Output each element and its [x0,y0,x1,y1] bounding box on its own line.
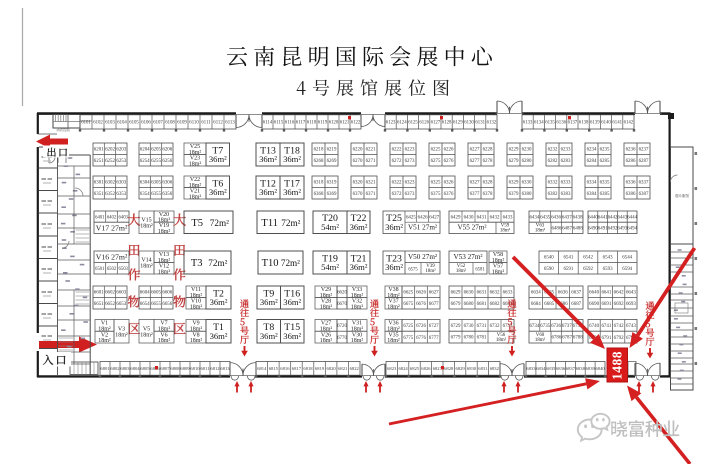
svg-text:V31: V31 [352,321,362,327]
svg-text:6322: 6322 [392,181,402,186]
svg-text:6111: 6111 [201,121,211,126]
svg-text:6354: 6354 [140,192,150,197]
svg-text:6121: 6121 [340,121,350,126]
svg-text:6270: 6270 [353,159,363,164]
svg-text:6652: 6652 [105,302,115,307]
svg-text:V6: V6 [160,332,167,338]
svg-text:6654: 6654 [140,302,150,307]
svg-text:6803: 6803 [120,366,130,371]
svg-text:36m²: 36m² [259,154,277,164]
svg-text:6814: 6814 [257,366,267,371]
svg-text:6840: 6840 [596,366,606,371]
svg-text:6805: 6805 [140,366,150,371]
svg-text:54m²: 54m² [321,262,339,272]
svg-text:6631: 6631 [477,291,487,296]
svg-text:6235: 6235 [600,148,610,153]
svg-text:6203: 6203 [116,148,126,153]
svg-text:18m²: 18m² [387,327,400,333]
svg-text:6809: 6809 [180,366,190,371]
svg-text:6838: 6838 [576,366,586,371]
svg-text:V53 27m²: V53 27m² [453,253,482,261]
svg-text:36m²: 36m² [260,331,278,341]
svg-text:V10: V10 [191,298,201,304]
svg-text:V39: V39 [426,264,435,269]
svg-text:6305: 6305 [151,181,161,186]
svg-text:6581: 6581 [475,267,485,272]
svg-text:6103: 6103 [105,121,115,126]
svg-text:6742: 6742 [614,324,624,329]
svg-text:6304: 6304 [140,181,150,186]
svg-text:6440: 6440 [588,215,598,220]
svg-text:6590: 6590 [544,267,554,272]
svg-text:6601: 6601 [94,291,104,296]
svg-text:6787: 6787 [562,336,572,341]
svg-text:6786: 6786 [551,336,561,341]
svg-text:6826: 6826 [421,366,431,371]
svg-text:6677: 6677 [429,302,439,307]
svg-text:6384: 6384 [587,192,597,197]
svg-text:6373: 6373 [405,192,415,197]
svg-text:6430: 6430 [464,215,474,220]
svg-text:6137: 6137 [568,121,578,126]
svg-text:6434: 6434 [529,215,539,220]
svg-text:6355: 6355 [151,192,161,197]
svg-text:6834: 6834 [536,366,546,371]
svg-text:6233: 6233 [561,148,571,153]
svg-text:6387: 6387 [639,192,649,197]
svg-text:6502: 6502 [107,267,117,272]
svg-text:6488: 6488 [573,227,583,232]
svg-text:6277: 6277 [470,159,480,164]
svg-text:6319: 6319 [327,181,337,186]
svg-text:6128: 6128 [442,121,452,126]
svg-text:36m²: 36m² [385,222,403,232]
svg-text:6377: 6377 [470,192,480,197]
svg-text:18m²: 18m² [456,268,467,274]
svg-text:6731: 6731 [477,324,487,329]
svg-text:6122: 6122 [351,121,361,126]
svg-text:6105: 6105 [129,121,139,126]
svg-text:6376: 6376 [444,192,454,197]
svg-text:18m²: 18m² [98,327,111,333]
svg-text:V9: V9 [192,321,199,327]
svg-text:6725: 6725 [403,324,413,329]
svg-text:6130: 6130 [464,121,474,126]
svg-text:6104: 6104 [117,121,127,126]
svg-text:6824: 6824 [399,366,409,371]
svg-text:6818: 6818 [303,366,313,371]
svg-text:6425: 6425 [406,215,416,220]
svg-text:6106: 6106 [141,121,151,126]
svg-text:6370: 6370 [353,192,363,197]
svg-text:V19: V19 [159,223,169,229]
svg-text:6444: 6444 [627,215,637,220]
svg-text:V33: V33 [352,287,362,293]
svg-text:6273: 6273 [405,159,415,164]
svg-text:6234: 6234 [587,148,597,153]
svg-text:V28: V28 [321,298,331,304]
svg-text:6780: 6780 [464,336,474,341]
svg-text:V30: V30 [352,332,362,338]
svg-text:36m²: 36m² [283,154,301,164]
svg-text:V57: V57 [493,263,503,269]
svg-text:18m²: 18m² [351,327,364,333]
svg-text:6141: 6141 [612,121,622,126]
svg-text:6542: 6542 [583,256,593,261]
svg-text:6681: 6681 [477,302,487,307]
svg-text:6353: 6353 [116,192,126,197]
svg-text:6321: 6321 [366,181,376,186]
svg-text:6640: 6640 [589,291,599,296]
svg-text:6605: 6605 [151,291,161,296]
svg-text:18m²: 18m² [500,228,511,234]
svg-text:6369: 6369 [327,192,337,197]
svg-text:观众服务: 观众服务 [675,193,690,198]
svg-text:18m²: 18m² [190,338,203,344]
svg-text:V59: V59 [501,224,510,229]
svg-text:6102: 6102 [93,121,103,126]
svg-text:6120: 6120 [329,121,339,126]
svg-text:6237: 6237 [639,148,649,153]
svg-text:6332: 6332 [548,181,558,186]
svg-text:6781: 6781 [477,336,487,341]
svg-text:6679: 6679 [451,302,461,307]
svg-text:6591: 6591 [563,267,573,272]
svg-text:6380: 6380 [522,192,532,197]
svg-text:6115: 6115 [274,121,284,126]
svg-text:V26: V26 [321,332,331,338]
svg-text:36m²: 36m² [283,331,301,341]
svg-text:6443: 6443 [617,215,627,220]
svg-text:36m²: 36m² [209,154,227,164]
svg-text:6287: 6287 [639,159,649,164]
svg-text:36m²: 36m² [350,222,368,232]
svg-text:6279: 6279 [509,159,519,164]
svg-text:18m²: 18m² [320,304,333,310]
svg-text:6823: 6823 [387,366,397,371]
svg-text:6385: 6385 [600,192,610,197]
svg-text:6775: 6775 [403,336,413,341]
svg-text:6383: 6383 [561,192,571,197]
svg-text:V11: V11 [191,287,201,293]
svg-text:6670: 6670 [337,302,347,307]
svg-text:6372: 6372 [392,192,402,197]
svg-text:36m²: 36m² [283,187,301,197]
svg-text:6675: 6675 [403,302,413,307]
svg-text:6720: 6720 [337,324,347,329]
svg-text:6777: 6777 [429,336,439,341]
svg-text:6323: 6323 [405,181,415,186]
svg-text:6627: 6627 [429,291,439,296]
svg-text:V7: V7 [160,321,167,327]
svg-text:6205: 6205 [151,148,161,153]
svg-text:V56: V56 [497,333,506,338]
svg-text:6223: 6223 [405,148,415,153]
svg-text:6625: 6625 [403,291,413,296]
svg-text:72m²: 72m² [210,218,229,228]
svg-text:6503: 6503 [119,267,129,272]
svg-text:6337: 6337 [639,181,649,186]
svg-text:6690: 6690 [589,302,599,307]
svg-text:6285: 6285 [600,159,610,164]
svg-text:V20: V20 [159,212,169,218]
svg-text:6132: 6132 [487,121,497,126]
svg-text:6839: 6839 [586,366,596,371]
svg-text:54m²: 54m² [321,222,339,232]
svg-text:6801: 6801 [100,366,110,371]
svg-text:6592: 6592 [583,267,593,272]
svg-text:6685: 6685 [544,302,554,307]
svg-text:6431: 6431 [477,215,487,220]
svg-text:18m²: 18m² [140,223,153,229]
svg-text:36m²: 36m² [283,297,301,307]
svg-text:6251: 6251 [94,159,104,164]
svg-text:V55 27m²: V55 27m² [457,224,486,232]
svg-text:6815: 6815 [269,366,279,371]
svg-text:6283: 6283 [561,159,571,164]
svg-text:V63: V63 [536,224,545,229]
svg-text:6284: 6284 [587,159,597,164]
svg-text:6680: 6680 [464,302,474,307]
svg-text:18m²: 18m² [189,161,202,167]
svg-text:T11: T11 [261,218,278,229]
svg-text:6125: 6125 [408,121,418,126]
svg-text:18m²: 18m² [140,264,153,270]
svg-text:6743: 6743 [626,324,636,329]
svg-text:6401: 6401 [95,215,105,220]
svg-text:6817: 6817 [292,366,302,371]
svg-text:6328: 6328 [483,181,493,186]
svg-text:6493: 6493 [617,227,627,232]
svg-text:6819: 6819 [315,366,325,371]
svg-text:6835: 6835 [546,366,556,371]
svg-text:6272: 6272 [392,159,402,164]
svg-text:6129: 6129 [453,121,463,126]
svg-text:V36: V36 [388,321,398,327]
svg-text:6633: 6633 [503,291,513,296]
svg-text:6142: 6142 [624,121,634,126]
svg-text:6112: 6112 [213,121,223,126]
svg-text:6253: 6253 [116,159,126,164]
svg-text:6119: 6119 [318,121,328,126]
svg-text:18m²: 18m² [190,304,203,310]
svg-text:18m²: 18m² [158,229,171,235]
svg-text:6632: 6632 [490,291,500,296]
svg-text:6788: 6788 [573,336,583,341]
svg-text:6382: 6382 [548,192,558,197]
svg-text:6543: 6543 [603,256,613,261]
svg-text:6741: 6741 [601,324,611,329]
svg-text:6113: 6113 [225,121,235,126]
svg-text:V5: V5 [143,326,150,332]
svg-text:6327: 6327 [470,181,480,186]
svg-text:6352: 6352 [105,192,115,197]
svg-text:6684: 6684 [531,302,541,307]
svg-text:6811: 6811 [200,366,210,371]
svg-text:6792: 6792 [614,336,624,341]
svg-text:6318: 6318 [314,181,324,186]
svg-text:6368: 6368 [314,192,324,197]
svg-text:6626: 6626 [416,291,426,296]
svg-text:6220: 6220 [353,148,363,153]
svg-text:V23: V23 [190,155,200,161]
svg-text:V50 27m²: V50 27m² [408,253,437,261]
svg-text:6776: 6776 [416,336,426,341]
svg-text:6330: 6330 [522,181,532,186]
svg-text:18m²: 18m² [158,338,171,344]
svg-text:V13: V13 [159,252,169,258]
svg-text:18m²: 18m² [320,338,333,344]
svg-text:V35: V35 [388,332,398,338]
svg-text:6432: 6432 [490,215,500,220]
svg-text:V37: V37 [388,298,398,304]
svg-text:6101: 6101 [81,121,91,126]
svg-text:6813: 6813 [220,366,230,371]
svg-text:6386: 6386 [626,192,636,197]
svg-text:6692: 6692 [614,302,624,307]
svg-text:6691: 6691 [601,302,611,307]
svg-text:6219: 6219 [327,148,337,153]
svg-text:V3: V3 [118,326,125,332]
svg-text:6830: 6830 [467,366,477,371]
svg-text:18m²: 18m² [320,327,333,333]
svg-text:6228: 6228 [483,148,493,153]
svg-text:6351: 6351 [94,192,104,197]
svg-text:6427: 6427 [429,215,439,220]
svg-text:6604: 6604 [140,291,150,296]
svg-text:V58: V58 [493,252,503,258]
svg-text:6693: 6693 [626,302,636,307]
svg-text:V51 27m²: V51 27m² [408,224,437,232]
svg-text:6643: 6643 [626,291,636,296]
svg-text:36m²: 36m² [350,262,368,272]
svg-text:6225: 6225 [431,148,441,153]
svg-text:6326: 6326 [444,181,454,186]
svg-text:6620: 6620 [337,291,347,296]
svg-text:V2: V2 [101,332,108,338]
svg-text:6402: 6402 [107,215,117,220]
svg-text:V25: V25 [190,144,200,150]
svg-text:6808: 6808 [170,366,180,371]
svg-text:6655: 6655 [151,302,161,307]
svg-text:6807: 6807 [160,366,170,371]
svg-text:6541: 6541 [563,256,573,261]
svg-text:6544: 6544 [622,256,632,261]
svg-text:V8: V8 [192,332,199,338]
svg-text:6837: 6837 [566,366,576,371]
svg-text:18m²: 18m² [425,268,436,274]
svg-text:V15: V15 [141,217,151,223]
svg-text:6656: 6656 [162,302,172,307]
svg-text:18m²: 18m² [158,269,171,275]
svg-text:6135: 6135 [545,121,555,126]
svg-text:6204: 6204 [140,148,150,153]
svg-text:6134: 6134 [534,121,544,126]
svg-text:6329: 6329 [509,181,519,186]
svg-text:6435: 6435 [540,215,550,220]
svg-text:6441: 6441 [598,215,608,220]
svg-text:6687: 6687 [571,302,581,307]
svg-text:6202: 6202 [105,148,115,153]
svg-text:6268: 6268 [314,159,324,164]
svg-text:6828: 6828 [444,366,454,371]
svg-text:T5: T5 [191,218,203,229]
svg-text:6375: 6375 [431,192,441,197]
svg-text:6730: 6730 [464,324,474,329]
svg-text:6378: 6378 [483,192,493,197]
svg-text:6306: 6306 [162,181,172,186]
svg-text:6836: 6836 [556,366,566,371]
svg-text:6820: 6820 [327,366,337,371]
svg-text:6606: 6606 [162,291,172,296]
svg-text:6334: 6334 [587,181,597,186]
svg-text:6437: 6437 [562,215,572,220]
svg-text:6136: 6136 [556,121,566,126]
svg-text:6379: 6379 [509,192,519,197]
svg-text:6107: 6107 [153,121,163,126]
svg-text:36m²: 36m² [209,187,227,197]
svg-text:18m²: 18m² [387,338,400,344]
svg-text:18m²: 18m² [189,194,202,200]
svg-text:6286: 6286 [626,159,636,164]
svg-text:6221: 6221 [366,148,376,153]
svg-text:6371: 6371 [366,192,376,197]
svg-text:6325: 6325 [431,181,441,186]
svg-text:18m²: 18m² [115,332,128,338]
svg-text:72m²: 72m² [281,258,300,268]
svg-text:1488: 1488 [609,351,624,380]
svg-text:T3: T3 [191,258,203,269]
svg-text:6236: 6236 [626,148,636,153]
svg-text:6282: 6282 [548,159,558,164]
svg-text:18m²: 18m² [351,338,364,344]
svg-text:消防控制: 消防控制 [56,127,70,132]
svg-text:6254: 6254 [140,159,150,164]
svg-text:T10: T10 [262,258,279,269]
svg-text:6433: 6433 [503,215,513,220]
svg-text:6118: 6118 [307,121,317,126]
svg-text:6229: 6229 [509,148,519,153]
svg-text:18m²: 18m² [189,150,202,156]
svg-text:6252: 6252 [105,159,115,164]
svg-text:6123: 6123 [386,121,396,126]
svg-text:6737: 6737 [562,324,572,329]
svg-text:6735: 6735 [540,324,550,329]
svg-text:36m²: 36m² [210,331,228,341]
svg-text:6117: 6117 [296,121,306,126]
svg-text:6779: 6779 [451,336,461,341]
svg-text:6403: 6403 [119,215,129,220]
svg-text:72m²: 72m² [281,218,300,228]
svg-text:6138: 6138 [579,121,589,126]
svg-text:6736: 6736 [551,324,561,329]
svg-text:6356: 6356 [162,192,172,197]
svg-text:V21: V21 [190,188,200,194]
svg-text:6641: 6641 [601,291,611,296]
svg-text:6436: 6436 [551,215,561,220]
svg-text:6540: 6540 [544,256,554,261]
svg-text:6727: 6727 [429,324,439,329]
svg-text:6822: 6822 [350,366,360,371]
svg-text:6442: 6442 [608,215,618,220]
svg-text:6280: 6280 [522,159,532,164]
svg-text:6438: 6438 [573,215,583,220]
svg-text:6255: 6255 [151,159,161,164]
svg-text:36m²: 36m² [259,187,277,197]
svg-text:6336: 6336 [626,181,636,186]
svg-text:18m²: 18m² [496,337,507,343]
svg-text:V1: V1 [101,321,108,327]
